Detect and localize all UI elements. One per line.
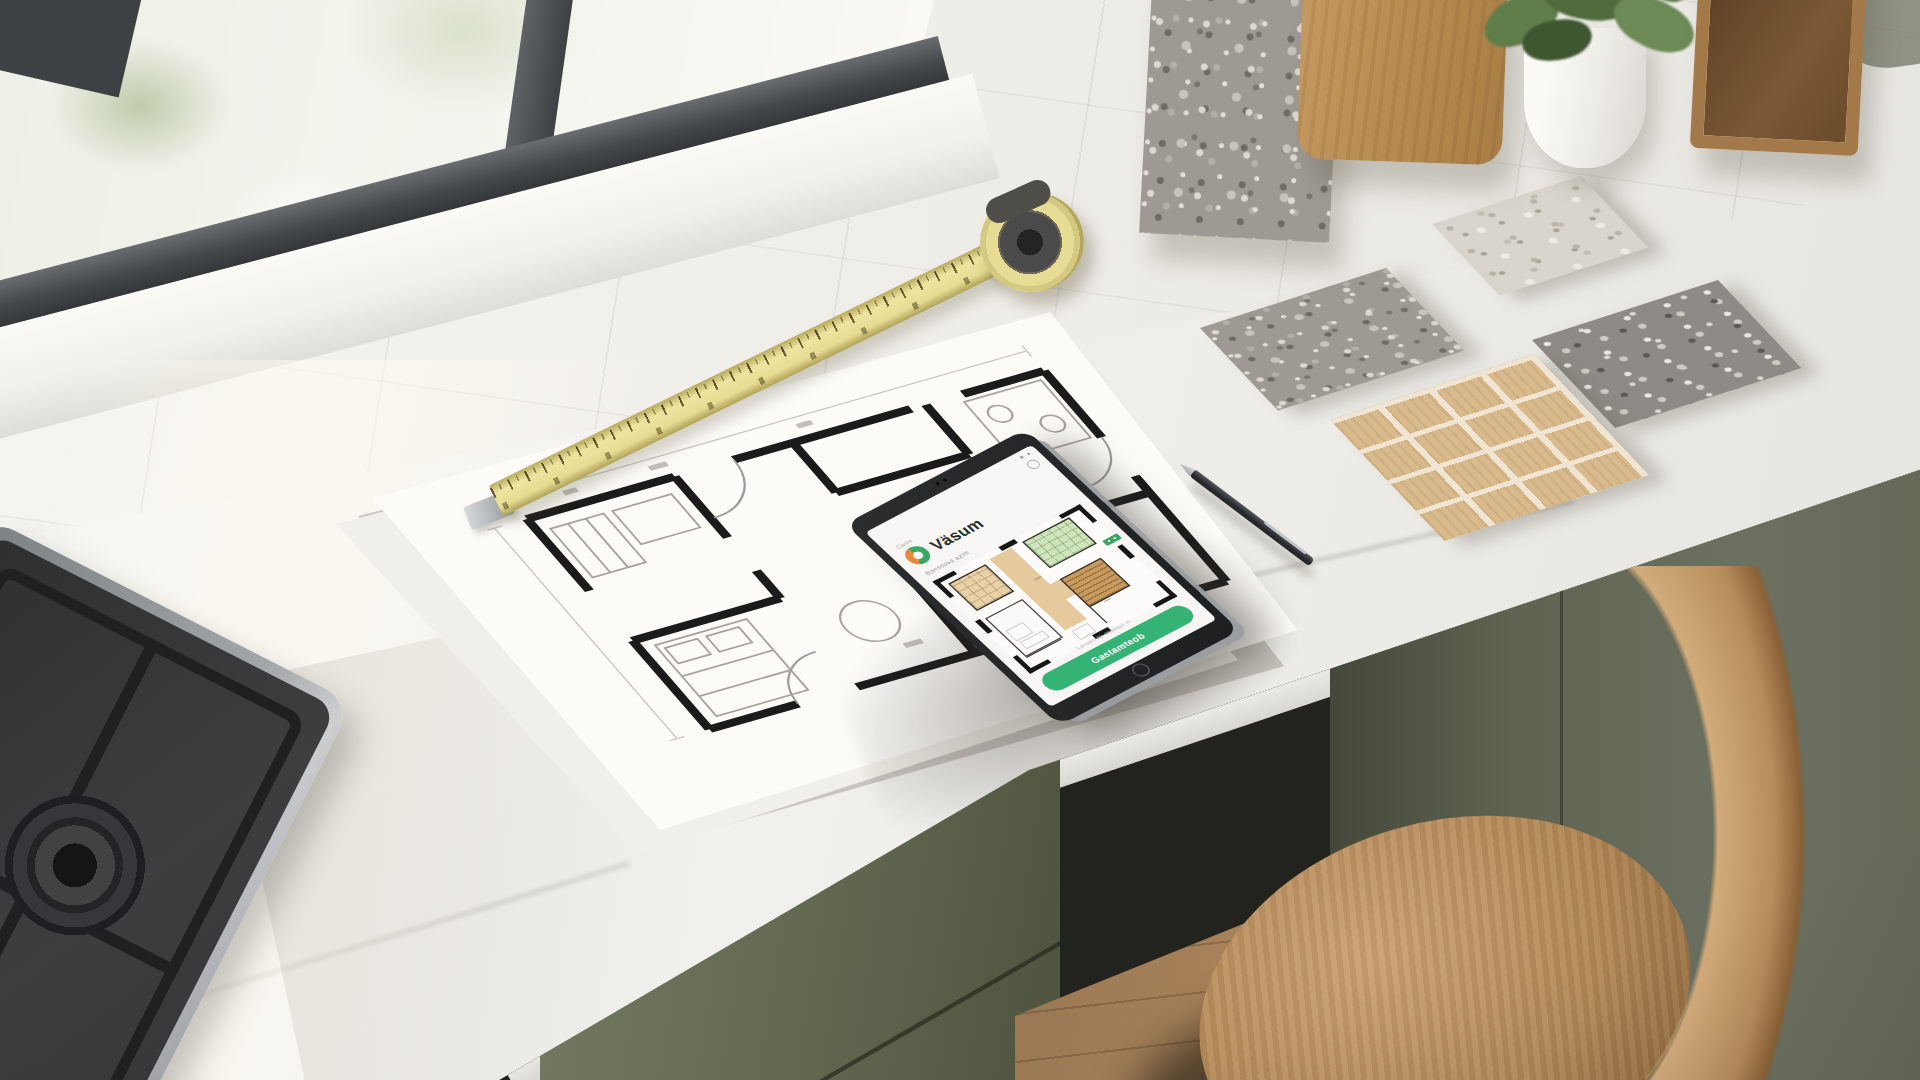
plant — [1462, 0, 1722, 96]
camera-icon — [935, 478, 948, 486]
app-title: Väsum — [926, 515, 988, 554]
chair-backrest — [1560, 566, 1920, 1080]
leaf — [1606, 0, 1703, 65]
edge-tick — [1117, 544, 1135, 559]
profile-circle-icon[interactable] — [1025, 458, 1043, 471]
scene: 5.0 · ≡ ▪ Carim — [0, 0, 1920, 1080]
plan-wall-line — [1090, 607, 1108, 624]
plan-stairs — [1060, 558, 1131, 608]
wooden-box — [1690, 0, 1868, 156]
